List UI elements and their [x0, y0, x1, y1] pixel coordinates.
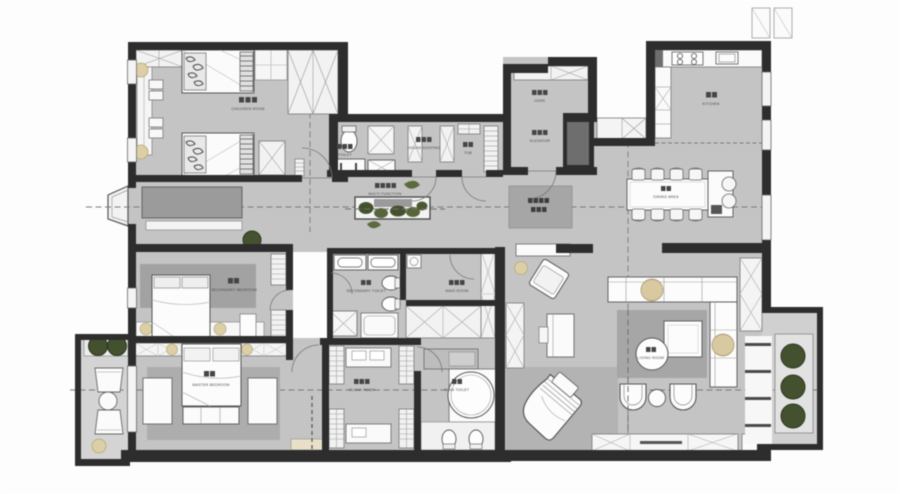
- svg-text:DINING AREA: DINING AREA: [653, 195, 679, 199]
- svg-text:SECONDARY BEDROOM: SECONDARY BEDROOM: [211, 288, 257, 292]
- svg-text:CHILDREN ROOM: CHILDREN ROOM: [231, 107, 264, 111]
- svg-text:TUB: TUB: [464, 151, 472, 155]
- svg-text:CLOAK ROOM: CLOAK ROOM: [349, 388, 375, 392]
- svg-text:LIVING ROOM: LIVING ROOM: [638, 356, 664, 360]
- svg-text:KITCHEN: KITCHEN: [702, 102, 719, 106]
- svg-text:ELEVATOR: ELEVATOR: [530, 139, 550, 143]
- svg-text:MULTI FUNCTION: MULTI FUNCTION: [369, 192, 402, 196]
- svg-text:MASTER BEDROOM: MASTER BEDROOM: [192, 383, 229, 387]
- svg-text:HOUSE KEEPING: HOUSE KEEPING: [408, 146, 440, 150]
- svg-text:HOPE: HOPE: [535, 99, 546, 103]
- svg-text:MAID ROOM: MAID ROOM: [446, 289, 469, 293]
- svg-text:MAIN TOILET: MAIN TOILET: [445, 388, 470, 392]
- svg-text:SECONDARY TOILET: SECONDARY TOILET: [346, 289, 386, 293]
- svg-text:TOILET: TOILET: [338, 153, 352, 157]
